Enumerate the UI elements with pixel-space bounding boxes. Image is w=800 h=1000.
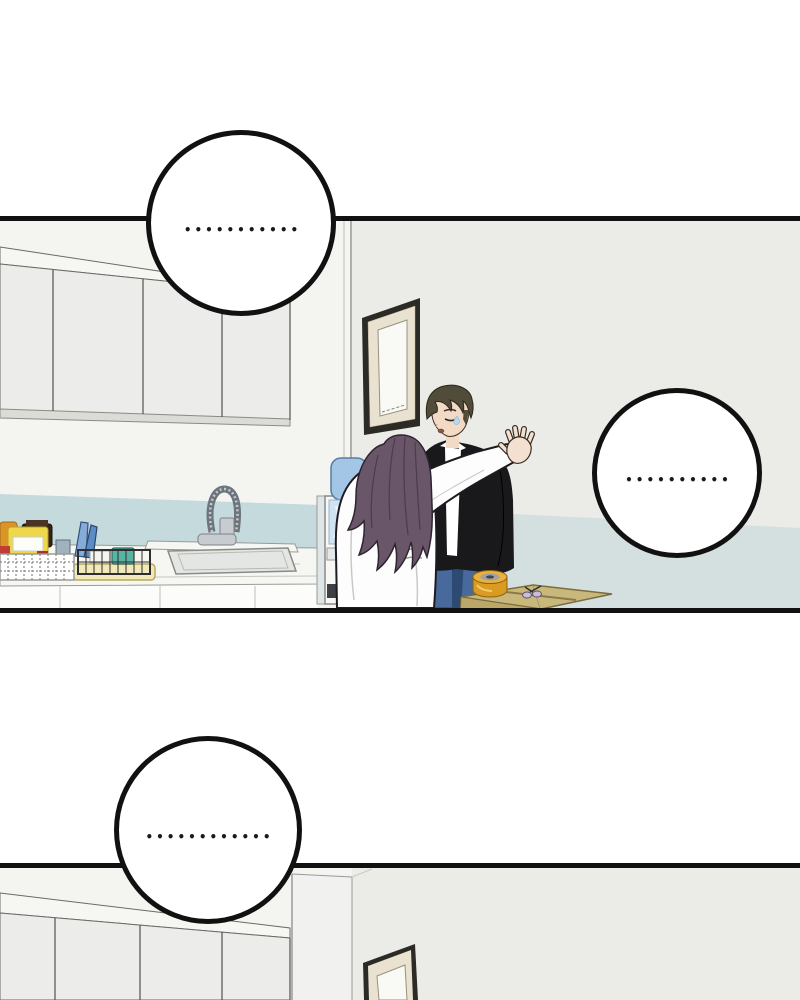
speech-bubble-1: ••••••••••• <box>146 130 336 316</box>
panel-2 <box>0 868 800 1000</box>
speech-bubble-2: •••••••••• <box>592 388 762 558</box>
soap-box <box>90 551 110 563</box>
faucet-base <box>198 534 236 545</box>
speech-bubble-3: •••••••••••• <box>114 736 302 924</box>
ellipsis-dots-1: ••••••••••• <box>181 209 301 237</box>
panel-1-bottom-border <box>0 608 800 613</box>
mouth <box>438 429 444 433</box>
panel-1-top-border <box>0 216 800 221</box>
panel-2-art <box>0 868 800 1000</box>
ellipsis-dots-2: •••••••••• <box>622 459 732 487</box>
picture-frame <box>362 298 420 435</box>
ellipsis-dots-3: •••••••••••• <box>142 816 273 844</box>
webtoon-page: { "bubbles": [ {"dots": "•••••••••••"}, … <box>0 0 800 1000</box>
frame-inner <box>378 320 407 416</box>
wire-basket <box>0 554 74 580</box>
drain-tray <box>73 564 155 580</box>
jar-label <box>13 537 43 551</box>
wall-right-2 <box>352 868 800 1000</box>
tape-roll <box>473 571 507 598</box>
